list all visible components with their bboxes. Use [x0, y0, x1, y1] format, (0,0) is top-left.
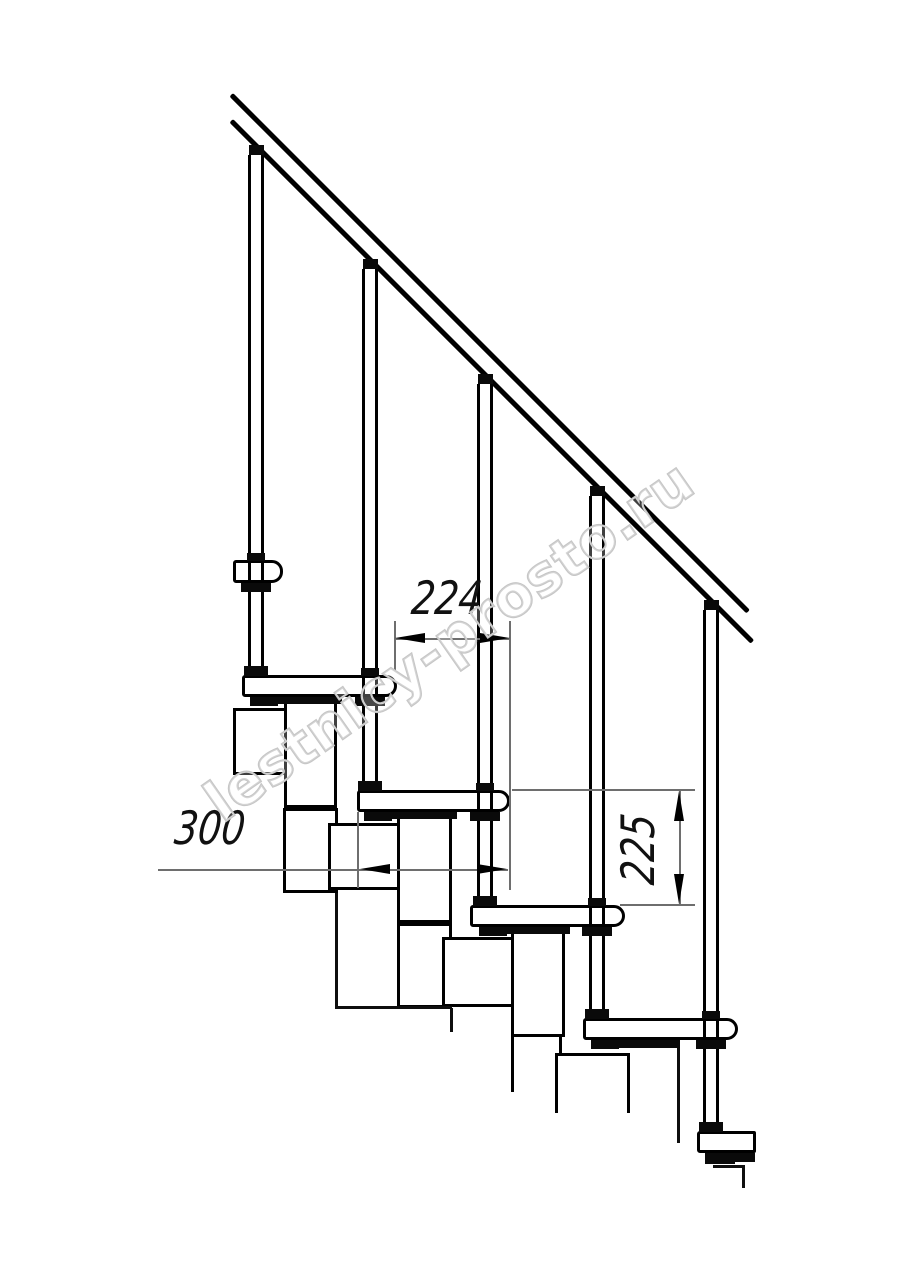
clamp-mark — [727, 1153, 755, 1162]
clamp-mark — [702, 1011, 720, 1019]
extension-line — [509, 621, 511, 890]
dimension-value-rise: 225 — [614, 802, 662, 895]
extension-line — [357, 812, 359, 888]
structure-cut-line — [713, 1165, 744, 1168]
dimension-value-run: 224 — [400, 574, 493, 622]
clamp-mark — [476, 783, 494, 791]
tread — [697, 1131, 756, 1153]
extension-line — [394, 621, 396, 671]
baluster-cap — [249, 145, 264, 155]
baluster-cap — [363, 259, 378, 269]
clamp-mark — [505, 927, 570, 934]
clamp-mark — [277, 697, 342, 704]
dim-arrowhead-left — [395, 633, 425, 643]
baluster — [477, 384, 493, 905]
extension-line — [620, 904, 695, 906]
clamp-mark — [241, 583, 271, 592]
baluster — [589, 496, 605, 1018]
staircase-technical-drawing: 224 300 225 lestnicy-prosto.ru — [0, 0, 914, 1280]
support-module — [397, 812, 452, 923]
support-module — [442, 937, 517, 1007]
dim-arrowhead-up — [674, 791, 684, 821]
clamp-mark — [582, 927, 612, 936]
baluster — [248, 155, 264, 675]
structure-cut-line — [677, 1047, 680, 1143]
clamp-mark — [696, 1040, 726, 1049]
baluster — [362, 269, 378, 790]
structure-cut-line — [335, 1006, 452, 1009]
dim-arrowhead-left — [360, 864, 390, 874]
support-module — [328, 823, 403, 890]
clamp-mark — [591, 1040, 619, 1049]
baluster — [703, 610, 719, 1131]
support-module — [555, 1053, 630, 1113]
extension-line — [512, 789, 695, 791]
baluster-cap — [704, 600, 719, 610]
clamp-mark — [588, 898, 606, 906]
clamp-mark — [355, 697, 385, 706]
support-module — [284, 703, 337, 808]
clamp-mark — [250, 697, 278, 706]
clamp-mark — [473, 896, 497, 906]
clamp-mark — [479, 927, 507, 936]
dim-arrowhead-down — [674, 874, 684, 904]
clamp-mark — [364, 812, 392, 821]
clamp-mark — [699, 1122, 723, 1132]
structure-cut-line — [335, 893, 338, 1008]
clamp-mark — [470, 812, 500, 821]
clamp-mark — [247, 553, 265, 561]
dim-arrowhead-right — [477, 864, 507, 874]
clamp-mark — [358, 781, 382, 791]
clamp-mark — [585, 1009, 609, 1019]
clamp-mark — [392, 812, 457, 819]
dim-arrowhead-right — [480, 633, 510, 643]
dimension-line — [158, 869, 508, 871]
support-module — [233, 708, 289, 775]
dimension-value-depth: 300 — [163, 803, 256, 853]
clamp-mark — [361, 668, 379, 676]
structure-cut-line — [742, 1165, 745, 1188]
clamp-mark — [244, 666, 268, 676]
clamp-mark — [618, 1040, 680, 1048]
baluster-cap — [590, 486, 605, 496]
support-module — [511, 927, 565, 1037]
baluster-cap — [478, 374, 493, 384]
structure-cut-line — [450, 1008, 453, 1032]
